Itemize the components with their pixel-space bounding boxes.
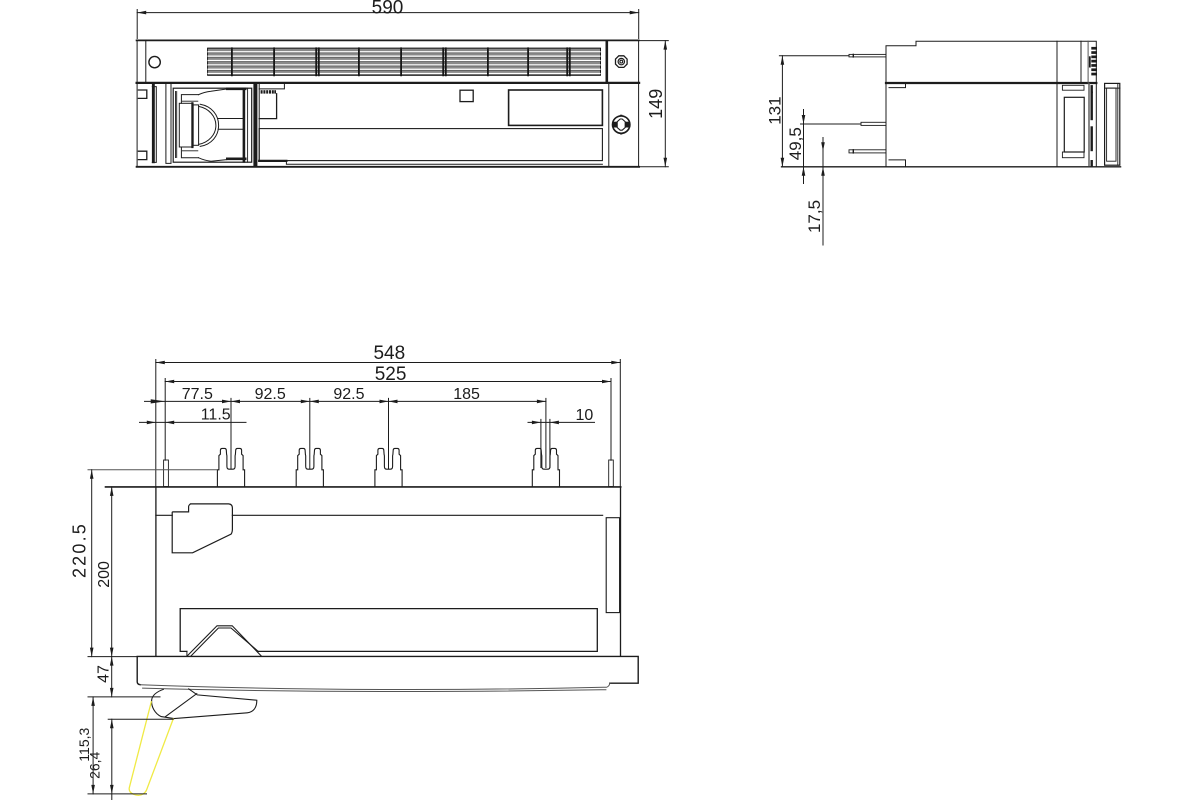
svg-text:11.5: 11.5 [201, 407, 231, 424]
svg-text:92.5: 92.5 [333, 386, 364, 403]
svg-text:185: 185 [453, 386, 480, 403]
svg-text:26,4: 26,4 [87, 751, 103, 778]
svg-text:525: 525 [375, 364, 407, 385]
svg-text:49,5: 49,5 [786, 127, 805, 160]
svg-text:17,5: 17,5 [805, 200, 824, 233]
svg-text:149: 149 [646, 89, 666, 119]
svg-text:220.5: 220.5 [69, 522, 89, 578]
svg-text:77.5: 77.5 [182, 386, 213, 403]
svg-text:92.5: 92.5 [255, 386, 286, 403]
svg-text:590: 590 [372, 0, 404, 19]
svg-text:200: 200 [96, 561, 113, 588]
svg-text:548: 548 [373, 343, 405, 364]
svg-text:131: 131 [766, 96, 785, 124]
svg-text:10: 10 [576, 407, 594, 424]
svg-text:47: 47 [95, 665, 112, 683]
